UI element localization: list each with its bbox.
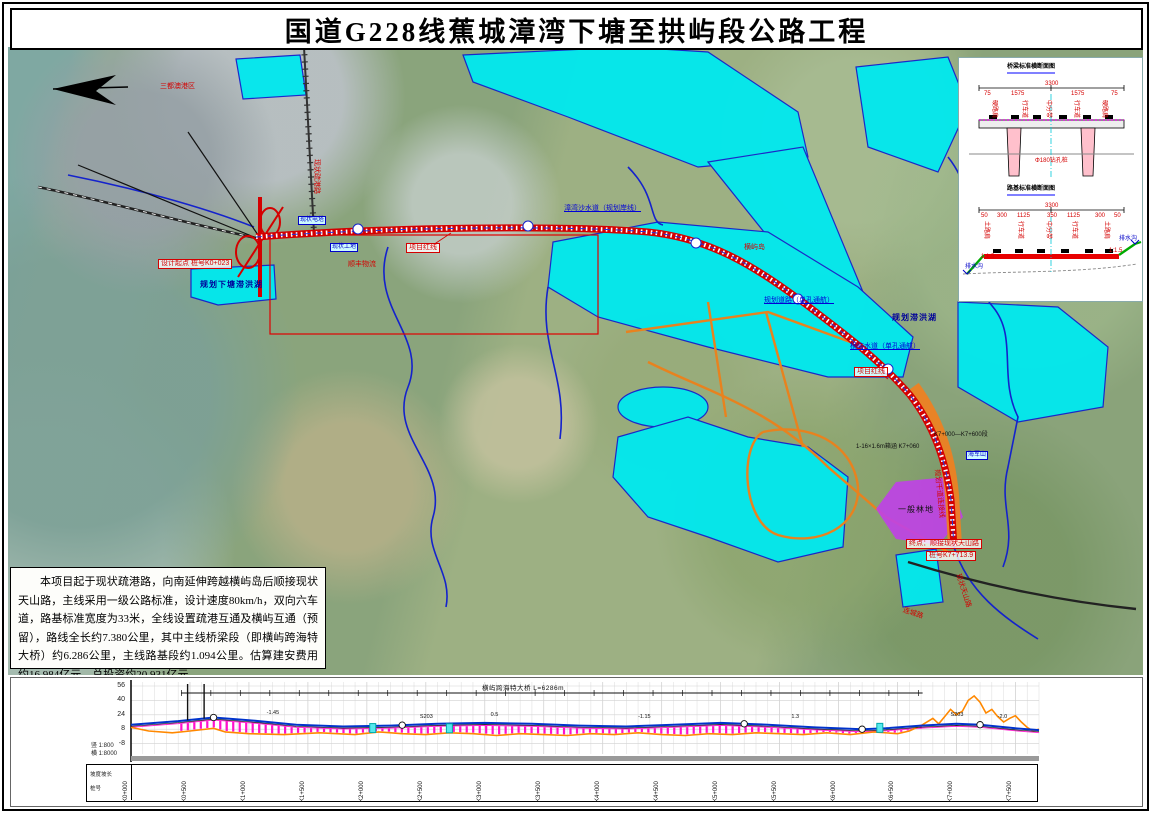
profile-station-label: K5+500	[772, 781, 778, 802]
map-label: 3300	[1045, 203, 1058, 210]
profile-ytick: 8	[101, 725, 125, 732]
cross-section-panel: 桥梁标准横断面图3300751575157575硬路肩行车道中分带行车道硬路肩Φ…	[958, 57, 1143, 302]
plan-road-nav-label: 规划道路（单孔通航）	[764, 297, 834, 305]
culvert-label: 1-16×1.6m箱涵 K7+060	[856, 444, 919, 451]
map-label: 1125	[1017, 213, 1030, 220]
map-label: 行车道	[1020, 100, 1027, 118]
map-label: 土路肩	[982, 221, 989, 239]
profile-annotation: -2.0	[998, 714, 1007, 720]
power-tower-label: 现状电塔	[298, 216, 326, 225]
tianshan-road-label: 现状天山路	[953, 573, 971, 609]
profile-station-label: K4+500	[654, 781, 660, 802]
profile-ytick: 56	[101, 682, 125, 689]
profile-station-label: K7+500	[1007, 781, 1013, 802]
shugang-road-label: 现状疏港路	[312, 159, 320, 194]
project-redline-label-1: 项目红线	[406, 243, 440, 253]
profile-station-label: K5+000	[713, 781, 719, 802]
profile-annotation: 0.5	[491, 712, 499, 718]
liancheng-road-label: 连城路	[902, 607, 924, 621]
profile-station-label: K0+000	[123, 781, 129, 802]
profile-ytick: 40	[101, 696, 125, 703]
map-label: 中分带	[1044, 100, 1051, 118]
route-map[interactable]: 三都澳港区现状疏港路设计起点 桩号K0+023规划下塘滞洪湖现状电塔现状工地顺丰…	[8, 47, 1143, 675]
forest-land-label: 一般林地	[898, 505, 934, 514]
profile-annotation: -1.15	[638, 714, 651, 720]
profile-station-label: K1+000	[241, 781, 247, 802]
page-title: 国道G228线蕉城漳湾下塘至拱屿段公路工程	[285, 10, 869, 49]
map-label: 50	[981, 213, 988, 220]
title-bar: 国道G228线蕉城漳湾下塘至拱屿段公路工程	[10, 8, 1143, 50]
profile-annotation: S203	[951, 712, 964, 718]
map-label: 75	[984, 91, 991, 98]
hengyu-island-label: 横屿岛	[744, 244, 765, 252]
waterway-label-2: 横屿水道（单孔通航）	[850, 343, 920, 351]
haijun-hill-label: 海军山	[966, 451, 988, 460]
station-strip-divider	[131, 764, 132, 800]
drawing-sheet: 国道G228线蕉城漳湾下塘至拱屿段公路工程	[0, 0, 1151, 813]
map-label: 硬路肩	[1100, 100, 1107, 118]
route-end-station-label: 桩号K7+713.9	[926, 551, 976, 561]
map-label: 行车道	[1070, 221, 1077, 239]
profile-ytick: 24	[101, 711, 125, 718]
map-label: 300	[1095, 213, 1105, 220]
map-label: 硬路肩	[990, 100, 997, 118]
bridge-section-title: 桥梁标准横断面图	[1007, 64, 1055, 74]
worksite-label: 现状工地	[330, 243, 358, 252]
profile-station-label: K2+500	[418, 781, 424, 802]
map-label: 行车道	[1072, 100, 1079, 118]
map-label: 50	[1114, 213, 1121, 220]
station-strip	[86, 764, 1038, 802]
map-label: 土路肩	[1102, 221, 1109, 239]
profile-annotation: 1.3	[791, 714, 799, 720]
profile-station-label: K6+500	[889, 781, 895, 802]
logistics-label: 顺丰物流	[348, 261, 376, 269]
map-label: 350	[1047, 213, 1057, 220]
map-label: 中分带	[1044, 221, 1051, 239]
project-redline-label-2: 项目红线	[854, 367, 888, 377]
profile-station-label: K1+500	[300, 781, 306, 802]
map-label: 75	[1111, 91, 1118, 98]
map-label: 1125	[1067, 213, 1080, 220]
port-area-label: 三都澳港区	[160, 83, 195, 91]
map-label: 排水沟	[1119, 236, 1137, 243]
profile-annotation: -1.45	[267, 710, 280, 716]
profile-scale-horizontal: 横 1:8000	[91, 748, 117, 757]
map-label: 行车道	[1016, 221, 1023, 239]
segment-label: K7+000—K7+600段	[934, 432, 988, 439]
route-start-label: 设计起点 桩号K0+023	[158, 259, 232, 269]
map-label: 1575	[1071, 91, 1084, 98]
waterway-label-1: 漳湾沙水道（规划岸线）	[564, 205, 641, 213]
xiatang-lake-label: 规划下塘滞洪湖	[200, 280, 263, 289]
bridge-extent-label: 横屿跨海特大桥 L=6286m	[482, 682, 564, 692]
profile-station-label: K0+500	[182, 781, 188, 802]
plan-lake-label: 规划滞洪湖	[892, 313, 937, 322]
project-description: 本项目起于现状疏港路，向南延伸跨越横屿岛后顺接现状天山路，主线采用一级公路标准，…	[18, 573, 318, 675]
profile-station-label: K6+000	[831, 781, 837, 802]
profile-row-label: 桩号	[90, 784, 101, 792]
map-label: 3300	[1045, 81, 1058, 88]
profile-station-label: K2+000	[359, 781, 365, 802]
longitudinal-profile-panel: 5640248-8K0+000K0+500K1+000K1+500K2+000K…	[10, 677, 1143, 807]
profile-row-label: 坡度坡长	[90, 770, 112, 778]
roadbed-section-title: 路基标准横断面图	[1007, 186, 1055, 196]
profile-station-label: K7+000	[948, 781, 954, 802]
route-end-label: 终点：顺接现状天山路	[906, 539, 982, 549]
profile-station-label: K3+000	[477, 781, 483, 802]
map-label: 1575	[1011, 91, 1024, 98]
map-label: 排水沟	[965, 264, 983, 271]
profile-station-label: K4+000	[595, 781, 601, 802]
map-label: 1:1.5	[1109, 248, 1122, 255]
profile-annotation: S203	[420, 714, 433, 720]
map-label: 300	[997, 213, 1007, 220]
map-label: Φ180钻孔桩	[1035, 158, 1068, 165]
profile-station-label: K3+500	[536, 781, 542, 802]
project-description-box: 本项目起于现状疏港路，向南延伸跨越横屿岛后顺接现状天山路，主线采用一级公路标准，…	[10, 567, 326, 669]
map-label: 1:1.5	[981, 254, 994, 261]
